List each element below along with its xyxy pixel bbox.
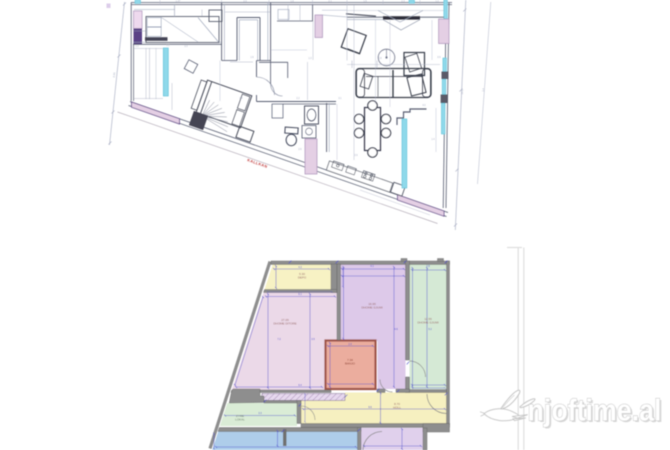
svg-text:LOKAL: LOKAL <box>235 418 245 422</box>
svg-text:BANJO: BANJO <box>345 362 356 366</box>
svg-text:DHOME GJUMI: DHOME GJUMI <box>361 306 382 310</box>
svg-text:HOLL: HOLL <box>393 406 401 410</box>
svg-text:DHOME DITORE: DHOME DITORE <box>273 322 296 326</box>
svg-text:8.95: 8.95 <box>112 72 117 78</box>
svg-text:njoftime.al: njoftime.al <box>528 393 662 428</box>
svg-text:DHOME GJUMI: DHOME GJUMI <box>417 321 438 325</box>
svg-text:1.47: 1.47 <box>176 0 181 3</box>
svg-text:DEPO: DEPO <box>298 276 307 280</box>
svg-text:10.5: 10.5 <box>460 89 464 95</box>
